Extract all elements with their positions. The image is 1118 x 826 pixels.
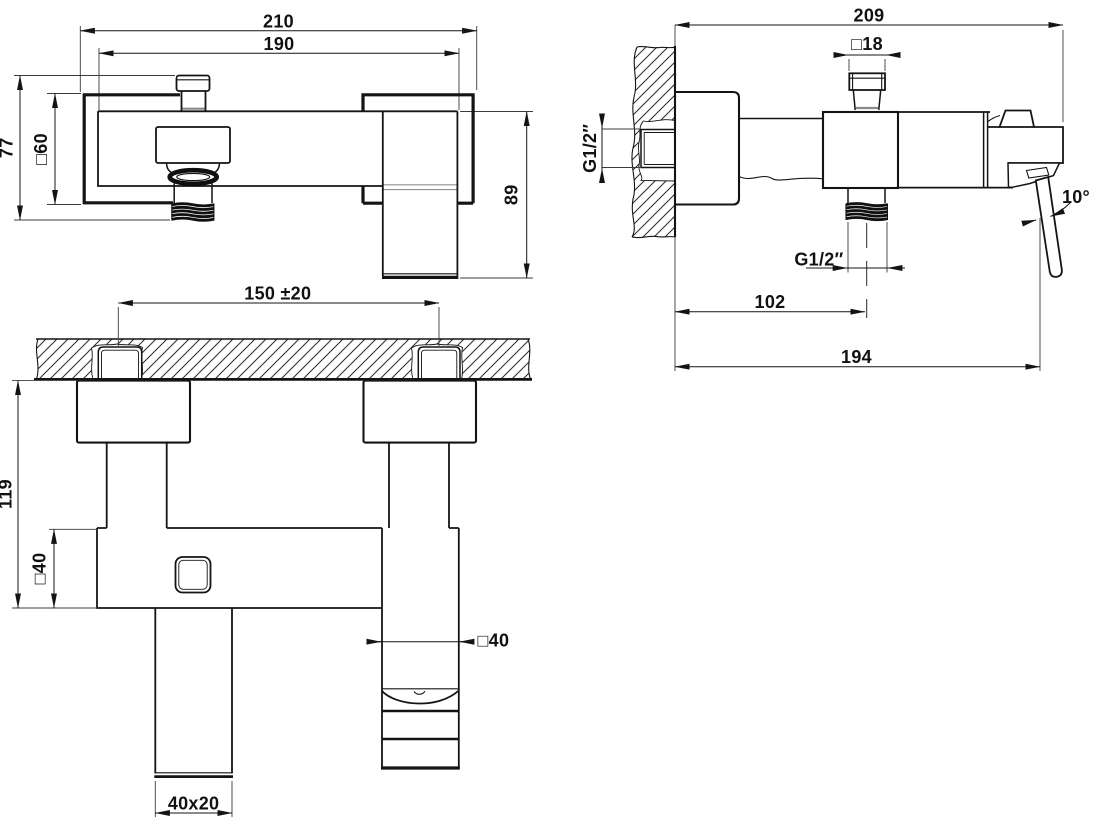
side-view: 209 □18 G1/2″ G1/2″ 102 194 10° bbox=[580, 6, 1090, 371]
front-diverter-knob bbox=[177, 76, 210, 112]
bottom-view: 150 ±20 119 □40 □40 40x20 bbox=[0, 283, 532, 817]
dim-label-overall-width: 210 bbox=[263, 12, 294, 32]
dim-label-spout-section: 40x20 bbox=[168, 794, 220, 814]
side-cap bbox=[849, 73, 885, 110]
dim-label-total-height: 119 bbox=[0, 479, 16, 509]
side-outlet-thread bbox=[846, 188, 888, 318]
dim-label-inlet-centres: 150 ±20 bbox=[244, 283, 311, 303]
bottom-escutcheon-left bbox=[77, 381, 190, 443]
front-view: 210 190 77 □60 89 bbox=[0, 12, 533, 279]
dim-label-handle-angle: 10° bbox=[1062, 187, 1090, 207]
front-handle bbox=[382, 111, 458, 277]
dim-label-handle-reach: 194 bbox=[841, 347, 872, 367]
dim-label-overall-depth: 209 bbox=[854, 6, 885, 26]
front-body-bar bbox=[98, 111, 457, 186]
dim-label-cap-square: □18 bbox=[851, 34, 883, 54]
bottom-tubes bbox=[107, 443, 449, 528]
bottom-handle bbox=[381, 528, 460, 768]
dim-label-body-square: □40 bbox=[30, 553, 50, 585]
bottom-spout bbox=[154, 608, 233, 777]
dim-label-outlet-offset: 102 bbox=[755, 292, 786, 312]
dim-label-outlet-thread: G1/2″ bbox=[794, 249, 843, 269]
side-tube bbox=[898, 112, 1013, 188]
lever-top bbox=[1000, 111, 1035, 128]
side-body bbox=[823, 112, 898, 188]
dim-label-holder-height: 77 bbox=[0, 137, 17, 158]
dim-label-handle-square: □40 bbox=[478, 631, 510, 651]
dim-label-inlet-thread: G1/2″ bbox=[580, 124, 600, 173]
dim-label-holder-square: □60 bbox=[31, 133, 51, 165]
bottom-diverter-button bbox=[176, 557, 211, 593]
front-handshower-holder bbox=[156, 127, 230, 221]
side-escutcheon bbox=[675, 92, 739, 205]
dim-label-body-width: 190 bbox=[264, 34, 295, 54]
technical-drawing: 210 190 77 □60 89 bbox=[0, 0, 1118, 826]
bottom-body-bar bbox=[97, 528, 459, 608]
side-inlet-nipple bbox=[641, 130, 675, 168]
drawing-sheet: 210 190 77 □60 89 bbox=[0, 0, 1118, 826]
dim-label-body-height: 89 bbox=[502, 184, 522, 205]
side-spout bbox=[988, 127, 1063, 163]
bottom-escutcheon-right bbox=[364, 381, 477, 443]
